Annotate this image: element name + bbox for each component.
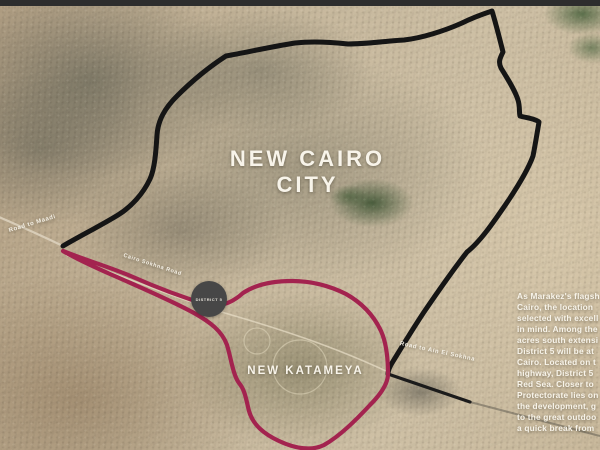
description-line: Protectorate lies on [517,390,600,401]
description-line: acres south extensi [517,335,600,346]
city-title: NEW CAIRO CITY [210,146,405,198]
road-to-sokhna-black [388,374,470,402]
city-title-line2: CITY [210,172,405,198]
ring-road-arc [244,328,270,354]
description-line: Cairo. Located on t [517,357,600,368]
district-5-logo-text: DISTRICT 5 [196,297,223,302]
description-line: Red Sea. Closer to [517,379,600,390]
boundary-overlay [0,0,600,450]
district-5-logo: DISTRICT 5 [191,281,227,317]
description-line: the development, g [517,401,600,412]
new-katameya-boundary [63,251,388,448]
description-line: As Marakez's flagsh [517,291,600,302]
description-line: in mind. Among the [517,324,600,335]
description-line: to the great outdoo [517,412,600,423]
city-title-line1: NEW CAIRO [210,146,405,172]
katameya-label: NEW KATAMEYA [238,365,373,377]
road-line-sokhna [66,255,386,371]
description-paragraph: As Marakez's flagshCairo, the locationse… [517,291,600,434]
description-line: a quick break from [517,423,600,434]
description-line: Cairo, the location [517,302,600,313]
description-line: District 5 will be at [517,346,600,357]
description-line: highway, District 5 [517,368,600,379]
satellite-map: NEW CAIRO CITY NEW KATAMEYA DISTRICT 5 R… [0,0,600,450]
description-line: selected with excell [517,313,600,324]
